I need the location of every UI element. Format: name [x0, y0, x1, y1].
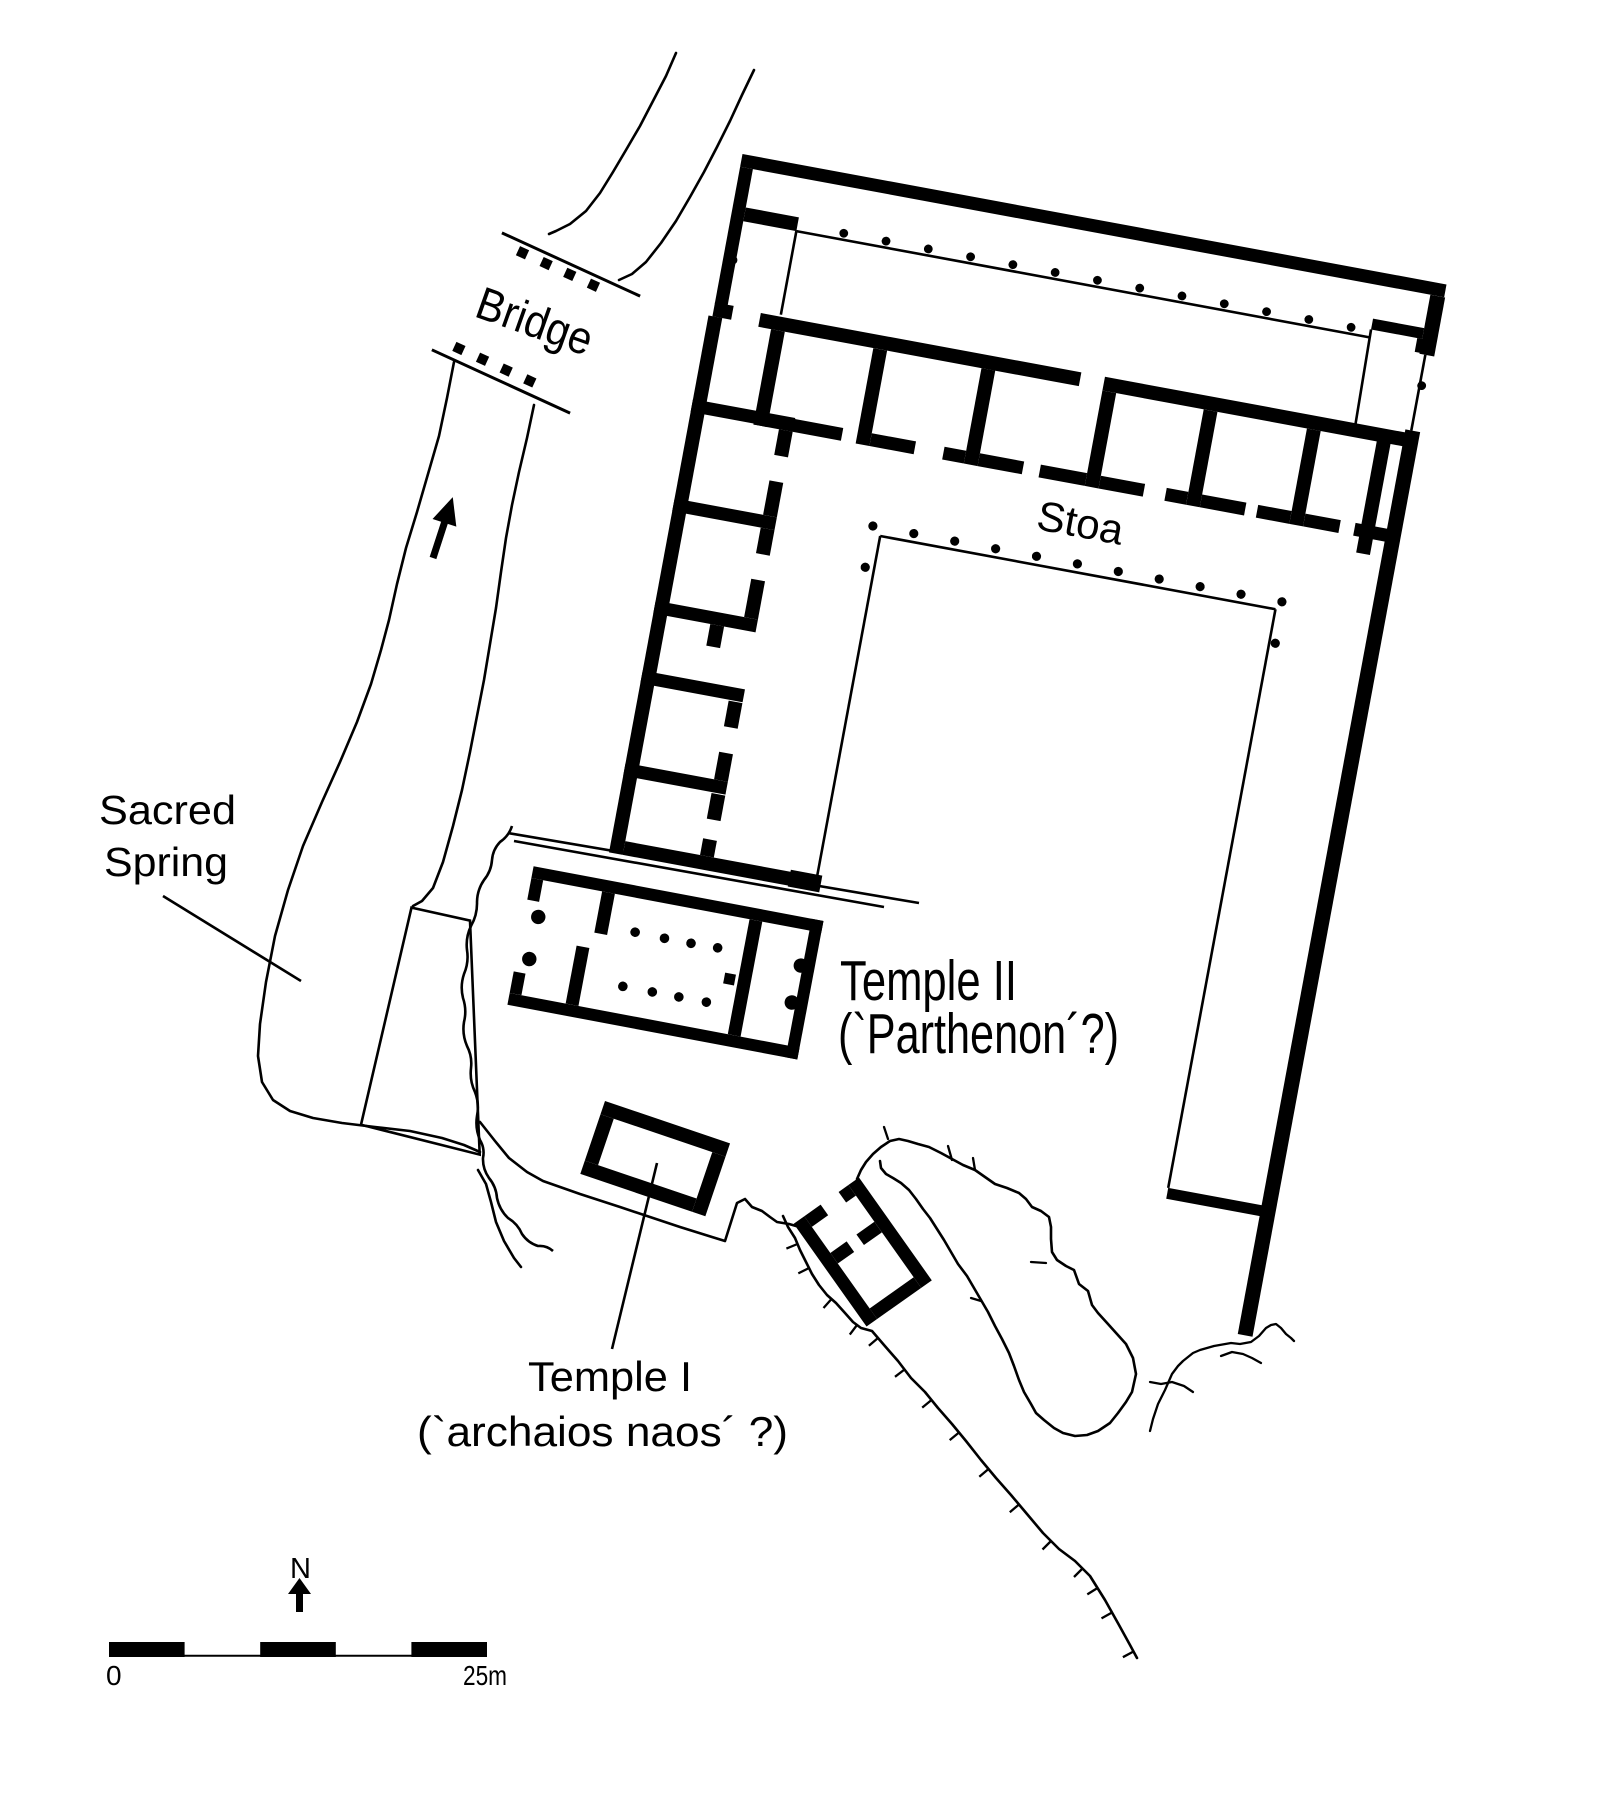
svg-text:(`archaios naos´ ?): (`archaios naos´ ?) — [417, 1408, 788, 1455]
svg-text:Spring: Spring — [104, 839, 228, 885]
svg-text:0: 0 — [106, 1660, 122, 1691]
svg-text:25m: 25m — [463, 1660, 507, 1691]
svg-text:(`Parthenon´?): (`Parthenon´?) — [838, 1002, 1119, 1066]
svg-text:Sacred: Sacred — [99, 787, 236, 833]
svg-text:Temple I: Temple I — [528, 1353, 692, 1400]
